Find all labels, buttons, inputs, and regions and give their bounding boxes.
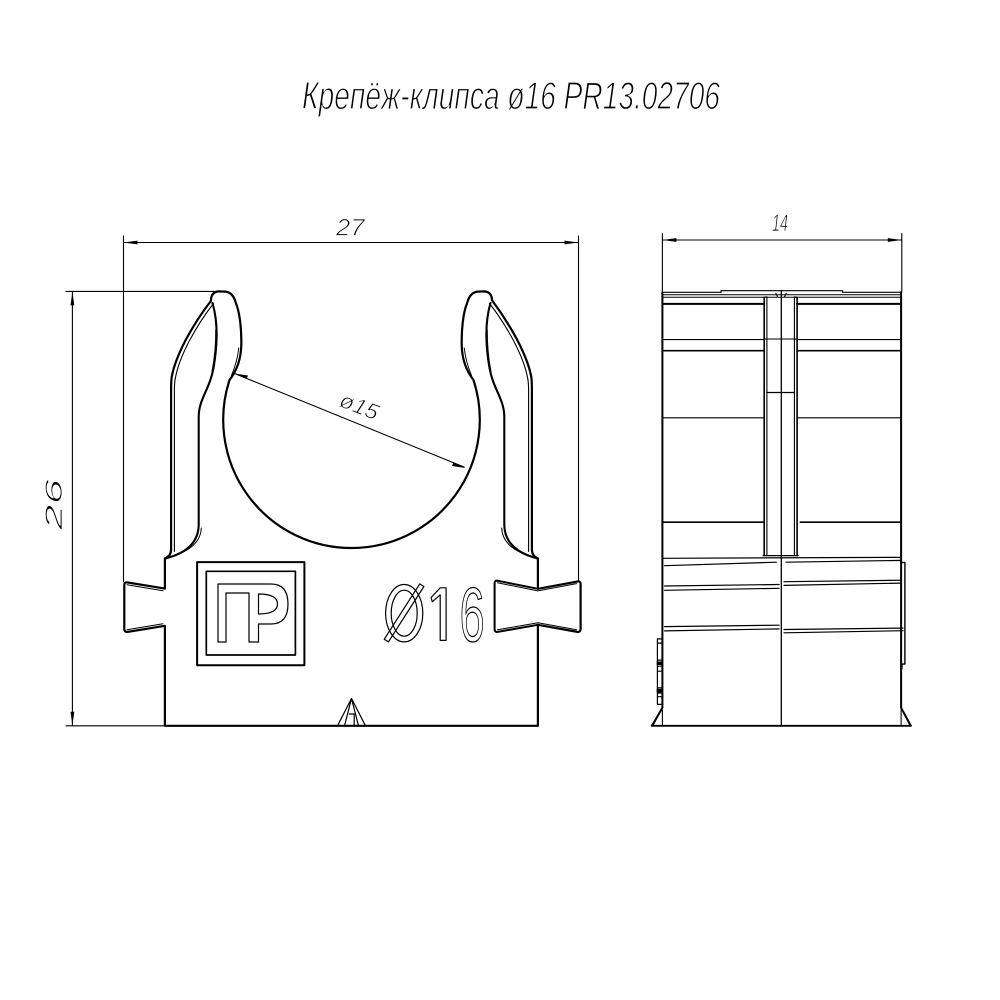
svg-text:27: 27: [335, 215, 366, 242]
svg-text:6: 6: [460, 573, 485, 659]
svg-text:Крепёж-клипса ø16 PR13.02706: Крепёж-клипса ø16 PR13.02706: [302, 75, 720, 118]
svg-text:14: 14: [772, 210, 788, 237]
svg-text:26: 26: [41, 478, 68, 532]
